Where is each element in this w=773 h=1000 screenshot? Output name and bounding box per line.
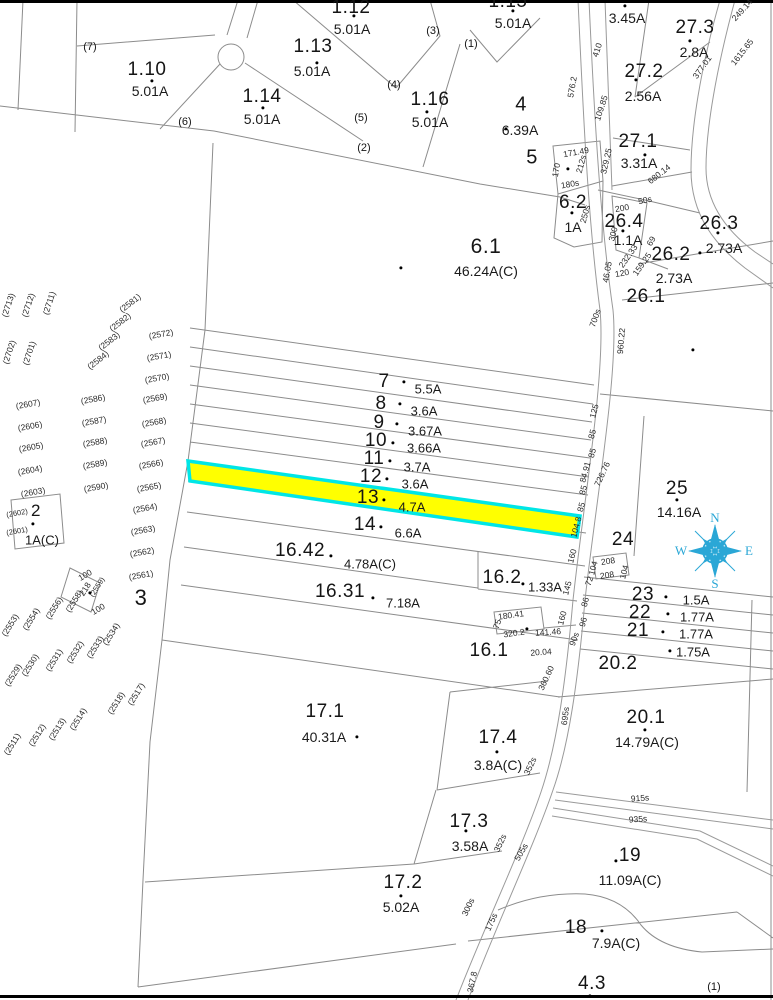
acreage-label: 3.66A [407,441,441,456]
measurement-label: 20.04 [530,646,552,657]
parcel-number-label: 18 [565,917,587,939]
acreage-label: 5.01A [412,114,449,130]
parcel-number-label: 27.2 [625,61,664,83]
parcel-number-label: 19 [619,845,641,867]
map-frame-top [0,0,773,3]
acreage-label: 5.02A [383,899,420,915]
parcel-number-label: 17.1 [306,701,345,723]
compass-south-label: S [711,576,718,592]
parcel-number-label: 25 [666,478,688,500]
acreage-label: 6.39A [502,122,539,138]
acreage-label: 5.01A [334,21,371,37]
acreage-label: 11.09A(C) [599,872,662,888]
acreage-label: 7.9A(C) [592,935,640,951]
parcel-number-label: 21 [627,620,649,642]
measurement-label: 208 [599,569,614,581]
acreage-label: 5.5A [415,382,442,397]
parcel-number-label: 17.2 [384,872,423,894]
acreage-label: 7.18A [386,596,420,611]
parcel-number-label: 1.16 [411,89,450,111]
acreage-label: 3.7A [404,460,431,475]
parcel-number-label: 1.10 [128,59,167,81]
parcel-map: N E S W 1.101.131.121.141.161.154527.327… [0,0,773,1000]
acreage-label: 4.7A [399,500,426,515]
compass-east-label: E [745,543,753,559]
parcel-number-label: 7 [378,371,389,393]
sublot-label: (1) [707,981,720,993]
acreage-label: 5.01A [294,63,331,79]
acreage-label: 2.73A [706,240,743,256]
acreage-label: 1A(C) [25,533,59,548]
parcel-number-label: 4.3 [578,973,606,995]
parcel-number-label: 17.3 [450,811,489,833]
acreage-label: 3.58A [452,838,489,854]
parcel-number-label: 5 [526,147,538,170]
measurement-label: 208 [600,555,615,567]
parcel-number-label: 13 [357,487,379,509]
parcel-number-label: 1.13 [294,36,333,58]
sublot-label: (6) [178,116,191,128]
parcel-number-label: 20.2 [599,653,638,675]
parcel-number-label: 1.12 [332,0,371,19]
parcel-number-label: 16.2 [483,567,522,589]
parcel-number-label: 27.1 [619,131,658,153]
compass-west-label: W [675,543,687,559]
sublot-label: (3) [426,25,439,37]
sublot-label: (2) [357,142,370,154]
acreage-label: 1.33A [528,580,562,595]
parcel-number-label: 1.14 [243,86,282,108]
parcel-number-label: 6.1 [471,235,502,259]
acreage-label: 2.56A [625,88,662,104]
parcel-number-label: 1.15 [489,0,528,13]
parcel-number-label: 2 [31,501,41,521]
sublot-label: (4) [387,79,400,91]
acreage-label: 3.6A [411,404,438,419]
acreage-label: 1.77A [680,610,714,625]
roads [456,0,773,1000]
acreage-label: 3.31A [621,155,658,171]
sublot-label: (5) [354,112,367,124]
parcel-number-label: 26.1 [627,286,666,308]
acreage-label: 14.79A(C) [615,734,679,750]
compass-rose-icon [688,524,742,578]
parcel-number-label: 12 [360,466,382,488]
parcel-number-label: 14 [354,514,376,536]
parcel-number-label: 16.31 [315,581,365,603]
acreage-label: 3.8A(C) [474,757,522,773]
parcel-number-label: 27.3 [676,17,715,39]
measurement-label: 935s [628,813,647,824]
acreage-label: 5.01A [495,15,532,31]
parcel-number-label: 3 [135,585,148,611]
parcel-number-label: 17.4 [479,727,518,749]
parcel-number-label: 20.1 [627,707,666,729]
acreage-label: 2.73A [656,270,693,286]
sublot-label: (7) [83,41,96,53]
acreage-label: 40.31A [302,729,346,745]
acreage-label: 3.6A [402,477,429,492]
parcel-number-label: 16.42 [275,540,325,562]
parcel-number-label: 4 [515,94,527,117]
parcel-number-label: 26.2 [652,244,691,266]
acreage-label: 5.01A [132,83,169,99]
acreage-label: 1.77A [679,627,713,642]
cul-de-sac [218,44,244,70]
acreage-label: 3.67A [408,424,442,439]
sublot-label: (1) [464,38,477,50]
measurement-label: 915s [630,792,649,803]
acreage-label: 1.75A [676,645,710,660]
acreage-label: 46.24A(C) [454,263,518,279]
compass-north-label: N [710,510,719,526]
acreage-label: 4.78A(C) [344,557,396,572]
parcel-number-label: 16.1 [470,640,509,662]
parcel-number-label: 24 [612,529,634,551]
acreage-label: 1.5A [683,593,710,608]
acreage-label: 5.01A [244,111,281,127]
acreage-label: 6.6A [395,526,422,541]
acreage-label: 14.16A [657,504,701,520]
acreage-label: 3.45A [609,10,646,26]
measurement-label: 141.46 [535,626,562,638]
map-frame-bottom [0,995,773,998]
